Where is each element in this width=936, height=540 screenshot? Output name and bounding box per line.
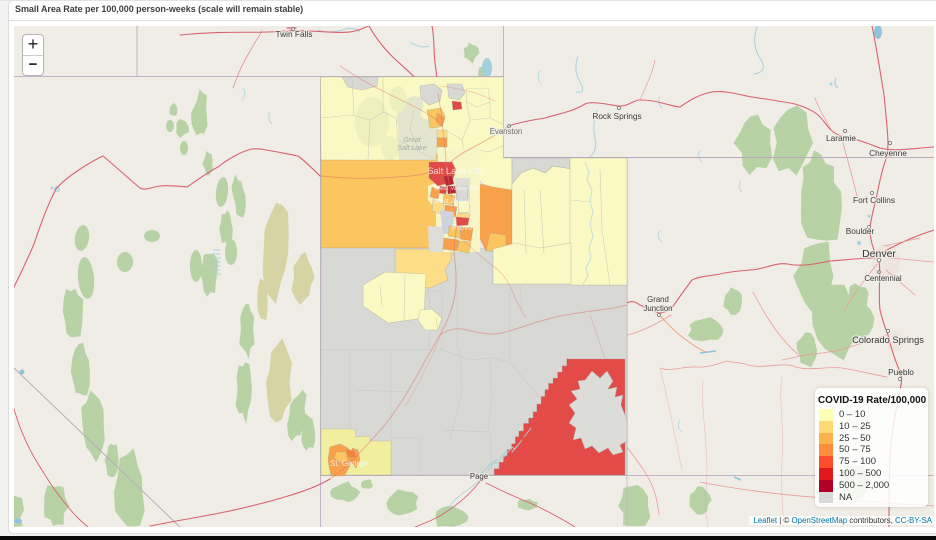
svg-text:Rock Springs: Rock Springs [592,111,641,121]
svg-text:West Valley City: West Valley City [434,185,481,192]
svg-text:Evanston: Evanston [490,127,523,136]
svg-text:Fort Collins: Fort Collins [853,195,895,205]
svg-text:Colorado Springs: Colorado Springs [852,335,924,345]
svg-text:Denver: Denver [862,248,896,260]
svg-text:Page: Page [470,472,488,481]
svg-text:Pueblo: Pueblo [888,367,914,377]
svg-text:Grand: Grand [647,295,669,304]
svg-text:Laramie: Laramie [826,133,856,143]
svg-text:Boulder: Boulder [846,226,875,236]
svg-text:Great: Great [403,137,422,144]
svg-text:St. George: St. George [330,459,368,468]
svg-text:Twin Falls: Twin Falls [276,29,313,39]
svg-text:Centennial: Centennial [864,274,902,283]
svg-text:Provo: Provo [452,223,473,232]
svg-text:Junction: Junction [643,304,672,313]
svg-text:West Jordan: West Jordan [434,198,470,205]
svg-text:Salt Lake City: Salt Lake City [427,166,485,176]
svg-text:Salt Lake: Salt Lake [397,145,426,152]
svg-text:Cheyenne: Cheyenne [869,148,907,158]
